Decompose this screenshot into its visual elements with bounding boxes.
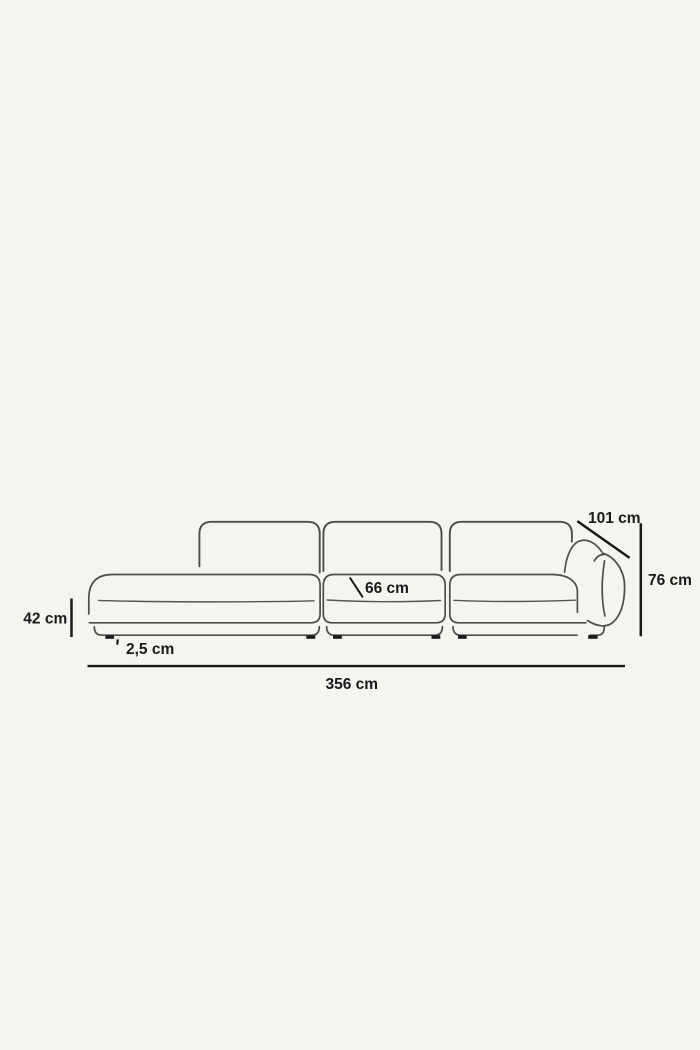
svg-text:101 cm: 101 cm (588, 510, 641, 527)
svg-text:356 cm: 356 cm (326, 676, 379, 693)
svg-text:42 cm: 42 cm (23, 611, 67, 628)
svg-text:66 cm: 66 cm (365, 580, 409, 597)
svg-text:2,5 cm: 2,5 cm (126, 641, 174, 658)
svg-text:76 cm: 76 cm (648, 572, 692, 589)
